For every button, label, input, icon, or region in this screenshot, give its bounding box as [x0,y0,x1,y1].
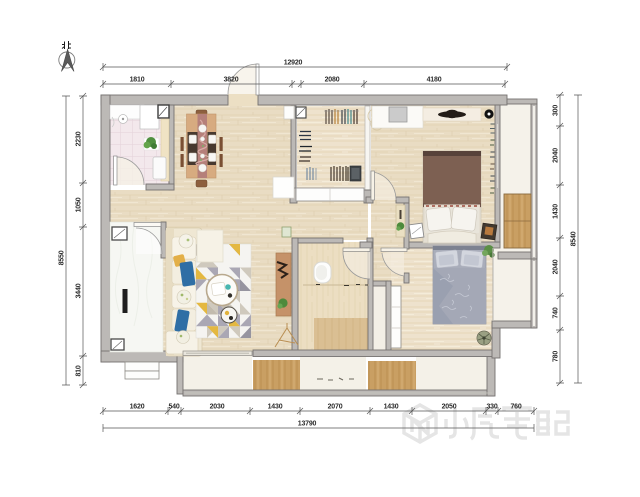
svg-text:8550: 8550 [59,250,66,265]
svg-text:2070: 2070 [328,404,343,411]
svg-text:8540: 8540 [571,231,578,246]
svg-text:1430: 1430 [384,404,399,411]
svg-text:4180: 4180 [427,77,442,84]
svg-text:1430: 1430 [268,404,283,411]
svg-text:760: 760 [510,404,521,411]
svg-text:2230: 2230 [76,131,83,146]
svg-text:1050: 1050 [76,197,83,212]
svg-text:2030: 2030 [210,404,225,411]
svg-text:300: 300 [553,105,560,116]
svg-text:2080: 2080 [325,77,340,84]
svg-text:13790: 13790 [298,421,317,428]
svg-text:810: 810 [76,365,83,376]
svg-text:330: 330 [486,404,497,411]
svg-text:780: 780 [553,351,560,362]
svg-text:3820: 3820 [224,77,239,84]
svg-text:740: 740 [553,307,560,318]
svg-text:2040: 2040 [553,148,560,163]
svg-text:1430: 1430 [553,204,560,219]
svg-text:2040: 2040 [553,259,560,274]
svg-text:1620: 1620 [130,404,145,411]
svg-text:540: 540 [168,404,179,411]
svg-text:12920: 12920 [284,60,303,67]
svg-text:3440: 3440 [76,283,83,298]
svg-text:2050: 2050 [442,404,457,411]
svg-text:1810: 1810 [130,77,145,84]
